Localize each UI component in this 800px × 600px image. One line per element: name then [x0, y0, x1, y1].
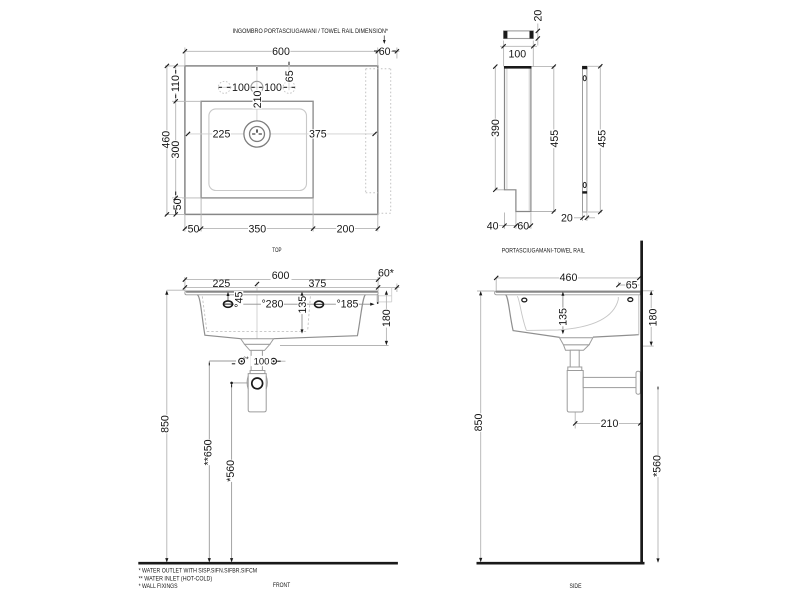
svg-text:* WALL FIXINGS: * WALL FIXINGS: [139, 583, 178, 590]
svg-text:*560: *560: [225, 460, 237, 482]
svg-text:850: 850: [160, 415, 172, 433]
svg-text:50: 50: [188, 223, 200, 235]
svg-text:350: 350: [248, 223, 266, 235]
svg-text:390: 390: [490, 119, 502, 137]
svg-text:PORTASCIUGAMANI-TOWEL RAIL: PORTASCIUGAMANI-TOWEL RAIL: [502, 247, 585, 254]
svg-text:20: 20: [561, 213, 573, 225]
svg-text:°185: °185: [336, 299, 358, 311]
svg-text:** WATER INLET (HOT-COLD): ** WATER INLET (HOT-COLD): [139, 575, 213, 582]
svg-text:225: 225: [213, 278, 231, 290]
svg-text:100: 100: [508, 49, 526, 61]
svg-text:180: 180: [647, 309, 659, 327]
svg-text:850: 850: [473, 414, 485, 432]
svg-text:40: 40: [487, 221, 499, 233]
svg-text:210: 210: [252, 90, 264, 108]
svg-text:*560: *560: [651, 455, 663, 477]
svg-text:135: 135: [297, 296, 309, 314]
svg-text:100: 100: [264, 82, 282, 94]
svg-text:225: 225: [213, 129, 231, 141]
svg-text:200: 200: [337, 223, 355, 235]
svg-text:°45: °45: [233, 291, 245, 307]
svg-text:100: 100: [254, 357, 270, 368]
svg-text:100: 100: [232, 82, 250, 94]
svg-text:60: 60: [517, 221, 529, 233]
svg-text:TOP: TOP: [272, 247, 281, 254]
svg-text:60: 60: [379, 46, 391, 58]
svg-text:60*: 60*: [378, 267, 394, 279]
svg-text:°280: °280: [261, 299, 283, 311]
svg-text:180: 180: [381, 309, 393, 327]
svg-text:65: 65: [626, 279, 638, 291]
svg-text:375: 375: [309, 129, 327, 141]
svg-text:210: 210: [601, 418, 619, 430]
svg-text:**650: **650: [202, 439, 214, 465]
svg-text:20: 20: [532, 10, 544, 22]
svg-text:600: 600: [272, 270, 290, 282]
svg-text:460: 460: [560, 272, 578, 284]
svg-text:455: 455: [549, 130, 561, 148]
svg-text:SIDE: SIDE: [570, 583, 583, 590]
svg-text:* WATER OUTLET WITH SISP.SIFN: * WATER OUTLET WITH SISP.SIFN.SIFBR.SIFC…: [139, 568, 258, 575]
svg-text:375: 375: [309, 278, 327, 290]
svg-text:300: 300: [170, 141, 182, 159]
svg-text:110: 110: [170, 75, 182, 92]
svg-text:600: 600: [272, 46, 290, 58]
svg-text:INGOMBRO PORTASCIUGAMANI / TOW: INGOMBRO PORTASCIUGAMANI / TOWEL RAIL DI…: [233, 28, 389, 35]
svg-text:135: 135: [558, 308, 570, 326]
svg-text:455: 455: [597, 130, 609, 148]
svg-text:65: 65: [284, 70, 296, 82]
svg-text:FRONT: FRONT: [273, 582, 290, 589]
svg-text:°*: °*: [243, 356, 249, 364]
